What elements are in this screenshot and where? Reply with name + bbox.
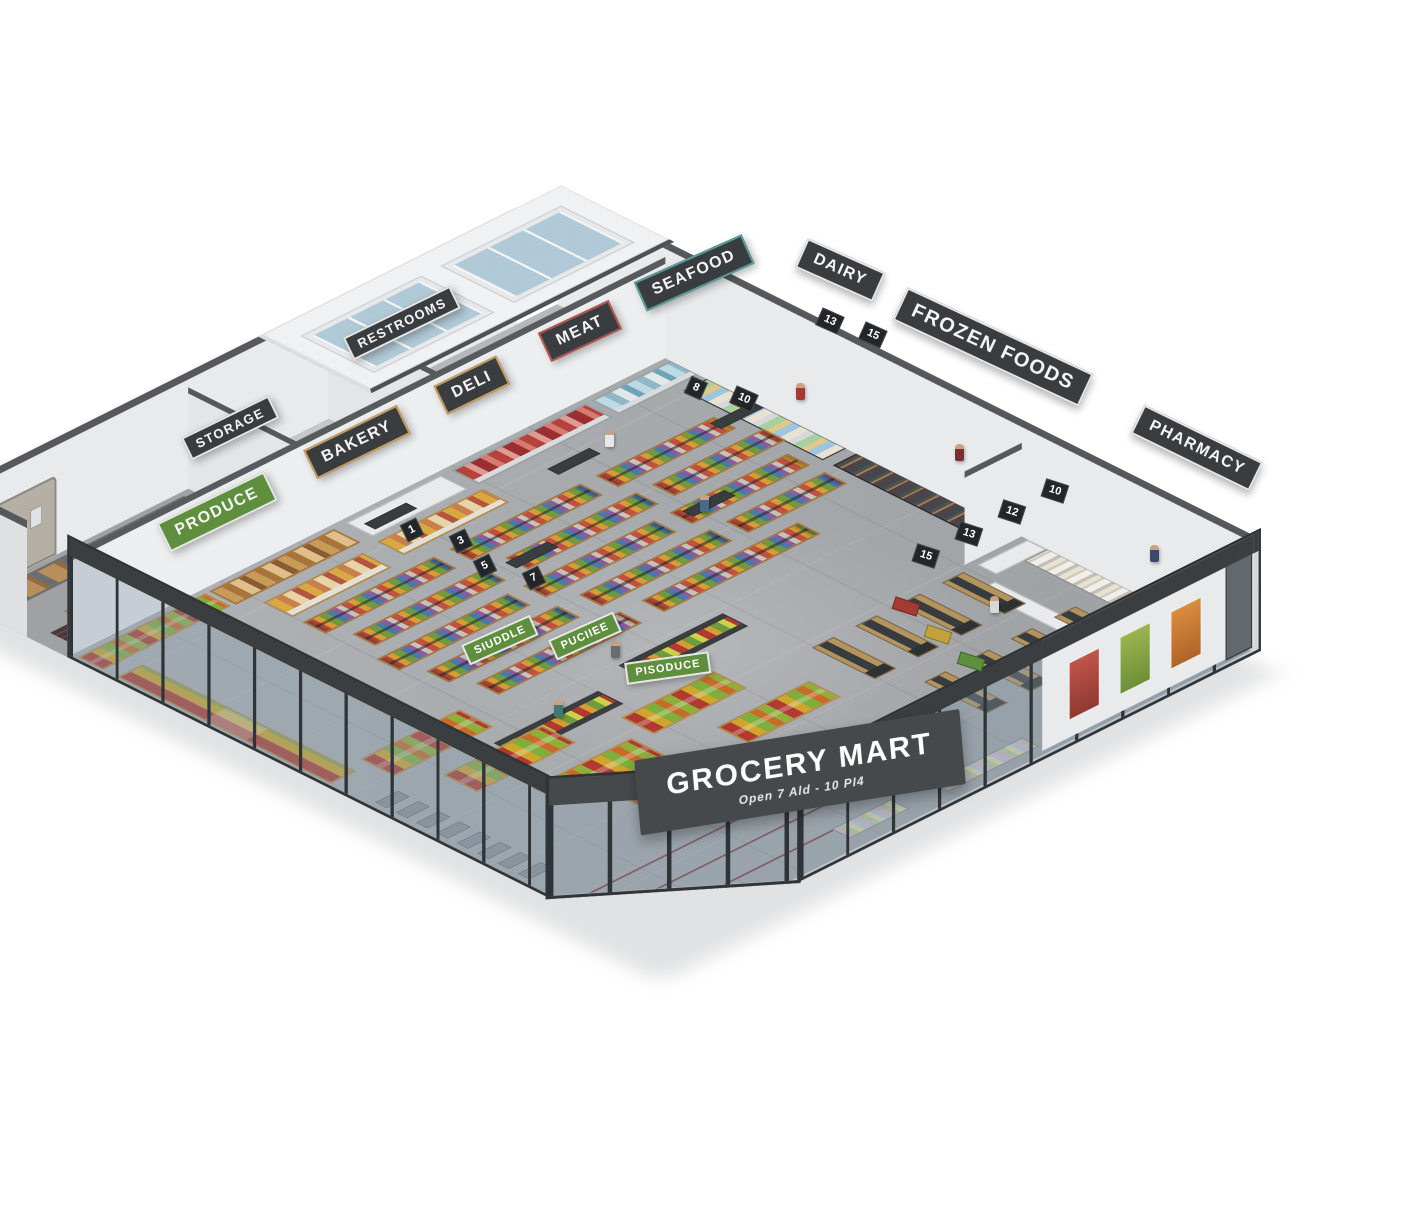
person-figure — [611, 641, 620, 658]
person-figure — [955, 444, 964, 461]
person-figure — [796, 383, 805, 400]
person-figure — [554, 700, 563, 717]
pharmacy-sign: PHARMACY — [1130, 405, 1263, 492]
person-figure — [1150, 545, 1159, 562]
person-figure — [605, 430, 614, 447]
entrance-corner — [545, 880, 793, 896]
person-figure — [990, 596, 999, 613]
dairy-sign: DAIRY — [795, 238, 885, 302]
side-door — [1225, 552, 1252, 660]
checkout-counter — [812, 637, 897, 679]
person-figure — [700, 495, 709, 512]
grocery-store-isometric-render: STORAGE RESTROOMS PRODUCE BAKERY DELI ME… — [0, 0, 1408, 1228]
isometric-building — [0, 304, 1251, 950]
